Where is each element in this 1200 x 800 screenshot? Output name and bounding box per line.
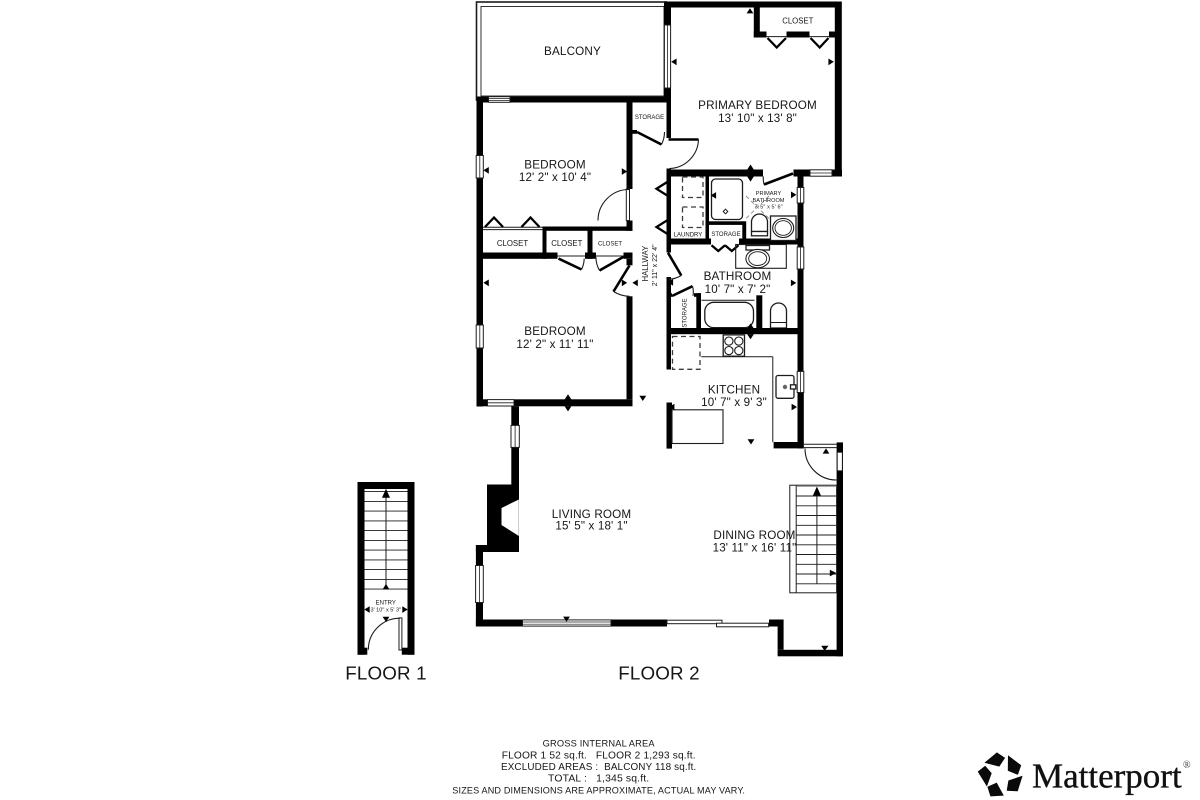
svg-text:FLOOR 1 52 sq.ft. FLOOR 2 1,: FLOOR 1 52 sq.ft. FLOOR 2 1,293 sq.ft. bbox=[502, 750, 696, 761]
svg-text:BALCONY: BALCONY bbox=[544, 45, 601, 58]
svg-text:STORAGE: STORAGE bbox=[711, 232, 740, 238]
svg-text:STORAGE: STORAGE bbox=[682, 298, 688, 327]
svg-text:7' 5" x 5' 6": 7' 5" x 5' 6" bbox=[754, 204, 783, 210]
svg-text:13' 11" x 16' 11": 13' 11" x 16' 11" bbox=[713, 542, 797, 555]
svg-text:HALLWAY: HALLWAY bbox=[641, 245, 650, 282]
svg-text:BATHROOM: BATHROOM bbox=[704, 270, 772, 283]
svg-text:PRIMARY: PRIMARY bbox=[756, 191, 782, 197]
svg-text:FLOOR 1: FLOOR 1 bbox=[345, 663, 426, 684]
svg-text:CLOSET: CLOSET bbox=[782, 16, 813, 25]
svg-text:BEDROOM: BEDROOM bbox=[524, 159, 585, 172]
svg-text:CLOSET: CLOSET bbox=[598, 241, 622, 247]
svg-text:TOTAL : 1,345 sq.ft.: TOTAL : 1,345 sq.ft. bbox=[548, 773, 649, 784]
svg-text:2' 11" x 22' 4": 2' 11" x 22' 4" bbox=[652, 244, 659, 286]
svg-text:BATHROOM: BATHROOM bbox=[753, 198, 785, 204]
svg-text:PRIMARY BEDROOM: PRIMARY BEDROOM bbox=[698, 99, 817, 112]
svg-text:STORAGE: STORAGE bbox=[635, 115, 664, 121]
svg-text:FLOOR 2: FLOOR 2 bbox=[618, 663, 699, 684]
svg-text:3' 10" x 5' 3": 3' 10" x 5' 3" bbox=[370, 607, 401, 613]
svg-text:EXCLUDED AREAS : BALCONY 118: EXCLUDED AREAS : BALCONY 118 sq.ft. bbox=[501, 762, 696, 773]
svg-text:BEDROOM: BEDROOM bbox=[524, 325, 585, 338]
svg-text:CLOSET: CLOSET bbox=[497, 239, 528, 248]
svg-text:13' 10" x 13' 8": 13' 10" x 13' 8" bbox=[718, 112, 797, 125]
svg-text:CLOSET: CLOSET bbox=[551, 239, 582, 248]
svg-text:KITCHEN: KITCHEN bbox=[708, 384, 760, 397]
svg-text:10' 7" x 9' 3": 10' 7" x 9' 3" bbox=[701, 396, 767, 409]
svg-text:ENTRY: ENTRY bbox=[376, 600, 396, 606]
svg-text:10' 7" x 7' 2": 10' 7" x 7' 2" bbox=[705, 283, 771, 296]
svg-text:15' 5" x 18' 1": 15' 5" x 18' 1" bbox=[555, 520, 627, 533]
svg-text:GROSS INTERNAL AREA: GROSS INTERNAL AREA bbox=[543, 739, 656, 749]
svg-text:DINING ROOM: DINING ROOM bbox=[713, 529, 795, 542]
svg-text:®: ® bbox=[1183, 760, 1191, 771]
svg-text:12' 2" x 11' 11": 12' 2" x 11' 11" bbox=[516, 338, 593, 351]
svg-text:LAUNDRY: LAUNDRY bbox=[674, 232, 703, 238]
svg-text:Matterport: Matterport bbox=[1032, 757, 1182, 796]
svg-text:12' 2" x 10' 4": 12' 2" x 10' 4" bbox=[519, 171, 591, 184]
svg-text:SIZES AND DIMENSIONS ARE APPRO: SIZES AND DIMENSIONS ARE APPROXIMATE, AC… bbox=[452, 785, 745, 795]
